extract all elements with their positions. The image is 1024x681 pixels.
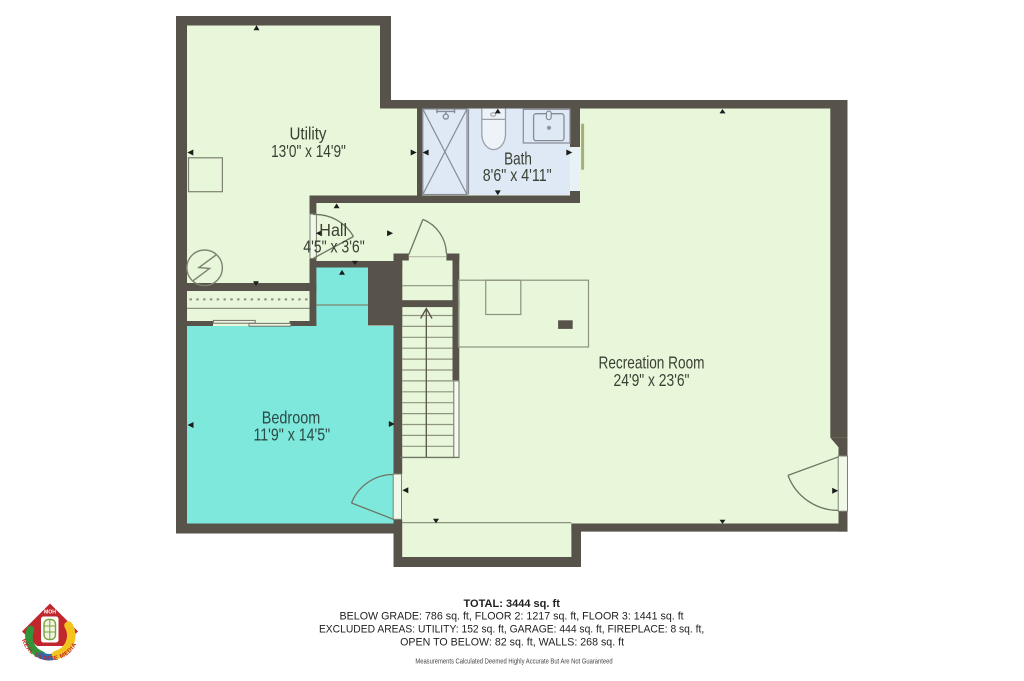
svg-text:24'9" x 23'6": 24'9" x 23'6": [614, 370, 690, 390]
svg-text:TOTAL: 3444 sq. ft: TOTAL: 3444 sq. ft: [464, 598, 561, 610]
svg-text:11'9" x 14'5": 11'9" x 14'5": [253, 425, 330, 445]
svg-text:8'6" x 4'11": 8'6" x 4'11": [483, 165, 552, 185]
svg-text:Measurements Calculated Deemed: Measurements Calculated Deemed Highly Ac…: [415, 659, 612, 666]
svg-text:BELOW GRADE: 786 sq. ft, FLOOR: BELOW GRADE: 786 sq. ft, FLOOR 2: 1217 s…: [340, 611, 684, 623]
svg-text:OPEN TO BELOW: 82 sq. ft, WALL: OPEN TO BELOW: 82 sq. ft, WALLS: 268 sq.…: [400, 637, 624, 649]
svg-text:EXCLUDED AREAS: UTILITY: 152 s: EXCLUDED AREAS: UTILITY: 152 sq. ft, GAR…: [319, 623, 704, 635]
svg-text:4'5" x 3'6": 4'5" x 3'6": [303, 237, 365, 257]
svg-text:13'0" x 14'9": 13'0" x 14'9": [271, 141, 346, 161]
svg-text:MOH: MOH: [44, 610, 56, 616]
